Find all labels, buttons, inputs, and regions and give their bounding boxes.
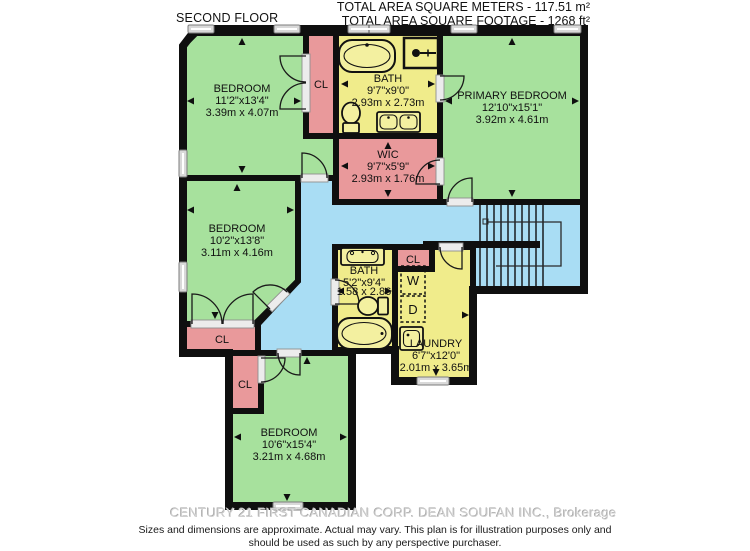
closet-c-label: CL: [406, 254, 420, 266]
bedroom-mid-left-met: 3.11m x 4.16m: [201, 247, 273, 259]
primary-bedroom-name: PRIMARY BEDROOM: [457, 90, 567, 102]
laundry-imp: 6'7"x12'0": [412, 350, 460, 362]
disclaimer-line-1: Sizes and dimensions are approximate. Ac…: [0, 524, 750, 537]
primary-bedroom-imp: 12'10"x15'1": [482, 102, 542, 114]
brokerage-watermark: CENTURY 21 FIRST CANADIAN CORP. DEAN SOU…: [170, 505, 594, 520]
floor-plan: BEDROOM 11'2"x13'4" 3.39m x 4.07m BATH 9…: [0, 0, 750, 551]
bath-main-name: BATH: [374, 73, 403, 85]
bedroom-mid-left-imp: 10'2"x13'8": [210, 235, 264, 247]
sink-fixture-second-bath: [341, 248, 384, 265]
wic-name: WIC: [377, 149, 398, 161]
bedroom-bottom-met: 3.21m x 4.68m: [253, 451, 326, 463]
bedroom-top-left-name: BEDROOM: [214, 83, 271, 95]
double-sink-fixture: [377, 112, 420, 132]
bath-second-met: 1.58 x 2.86: [337, 286, 391, 298]
primary-bedroom-met: 3.92m x 4.61m: [476, 114, 549, 126]
disclaimer-block: Sizes and dimensions are approximate. Ac…: [0, 524, 750, 549]
floor-plan-page: SECOND FLOOR TOTAL AREA SQUARE METERS - …: [0, 0, 750, 551]
bathtub-fixture-second: [337, 318, 392, 349]
wic-imp: 9'7"x5'9": [367, 161, 409, 173]
disclaimer-line-2: should be used as such by any perspectiv…: [0, 537, 750, 550]
closet-b-label: CL: [238, 379, 252, 391]
bedroom-bottom-imp: 10'6"x15'4": [262, 439, 316, 451]
laundry-met: 2.01m x 3.65m: [400, 362, 473, 374]
laundry-name: LAUNDRY: [410, 338, 463, 350]
bath-main-met: 2.93m x 2.73m: [352, 97, 425, 109]
bath-second-name: BATH: [350, 265, 379, 277]
closet-a-label: CL: [215, 334, 229, 346]
closet-top-label: CL: [314, 79, 328, 91]
bedroom-top-left-met: 3.39m x 4.07m: [206, 107, 279, 119]
toilet-fixture-second: [358, 297, 388, 315]
washer-label: W: [407, 273, 420, 288]
wic-met: 2.93m x 1.76m: [352, 173, 425, 185]
bedroom-top-left-imp: 11'2"x13'4": [215, 95, 268, 107]
bedroom-bottom-name: BEDROOM: [261, 427, 318, 439]
bath-main-imp: 9'7"x9'0": [367, 85, 409, 97]
dryer-label: D: [408, 302, 417, 317]
bathtub-fixture: [339, 40, 395, 72]
bedroom-mid-left-name: BEDROOM: [209, 223, 266, 235]
